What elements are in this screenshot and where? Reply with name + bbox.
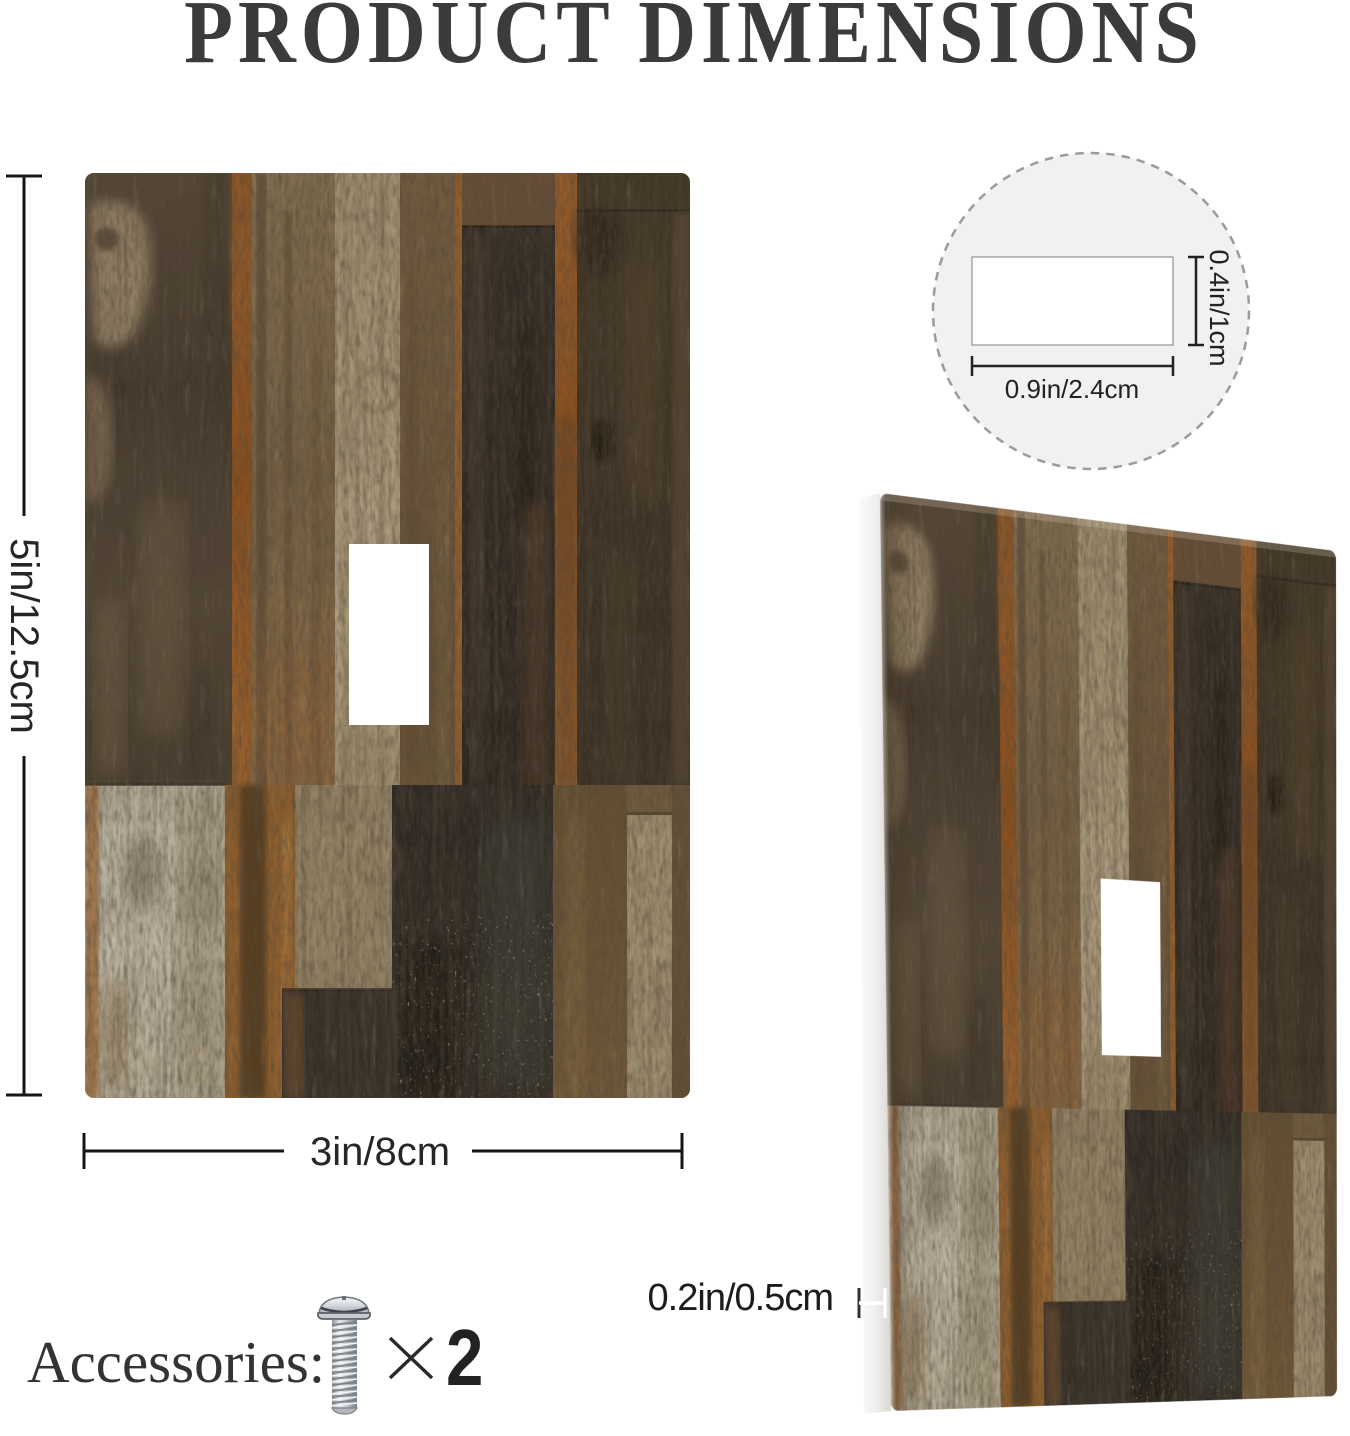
svg-text:0.4in/1cm: 0.4in/1cm xyxy=(1204,249,1234,366)
svg-text:5in/12.5cm: 5in/12.5cm xyxy=(2,538,46,734)
svg-text:3in/8cm: 3in/8cm xyxy=(310,1130,450,1174)
svg-text:0.9in/2.4cm: 0.9in/2.4cm xyxy=(1005,374,1139,404)
